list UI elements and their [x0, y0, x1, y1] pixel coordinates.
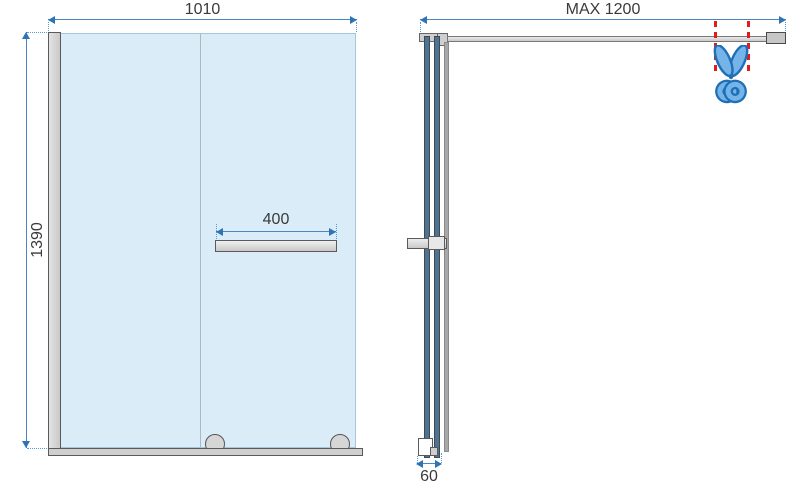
support-arm	[447, 36, 767, 42]
arrow-right-icon	[329, 228, 336, 236]
dim-arm-max-label: MAX 1200	[420, 2, 786, 18]
shelf-clamp	[428, 236, 445, 250]
arrow-right-icon	[435, 460, 442, 468]
arrow-left-icon	[420, 16, 427, 24]
arrow-left-icon	[216, 228, 223, 236]
dim-shelf-width-label: 400	[216, 212, 336, 228]
floor-guide	[430, 447, 438, 456]
arm-wall-cap	[766, 32, 786, 44]
extension-line	[27, 32, 47, 33]
arrow-left-icon	[48, 16, 55, 24]
wall-profile	[48, 32, 61, 456]
extension-line	[420, 22, 421, 32]
dim-profile-depth-label: 60	[404, 469, 454, 485]
dim-line	[26, 32, 27, 448]
dim-line	[420, 19, 786, 20]
dim-line	[48, 19, 357, 20]
arrow-down-icon	[22, 441, 30, 448]
extension-line	[48, 22, 49, 31]
extension-line	[356, 22, 357, 32]
dim-front-height-label: 1390	[29, 222, 47, 258]
shelf-front	[215, 240, 337, 252]
product-dimension-diagram: 1010 1390 400	[0, 0, 800, 500]
extension-line	[336, 224, 337, 239]
arrow-left-icon	[416, 460, 423, 468]
dim-front-width-label: 1010	[48, 2, 357, 18]
panel-divider	[200, 34, 201, 447]
bottom-rail	[48, 448, 363, 456]
dim-line	[216, 231, 336, 232]
extension-line	[27, 448, 47, 449]
scissors-icon	[703, 45, 759, 105]
extension-line	[785, 22, 786, 31]
arrow-up-icon	[22, 32, 30, 39]
extension-line	[216, 224, 217, 239]
